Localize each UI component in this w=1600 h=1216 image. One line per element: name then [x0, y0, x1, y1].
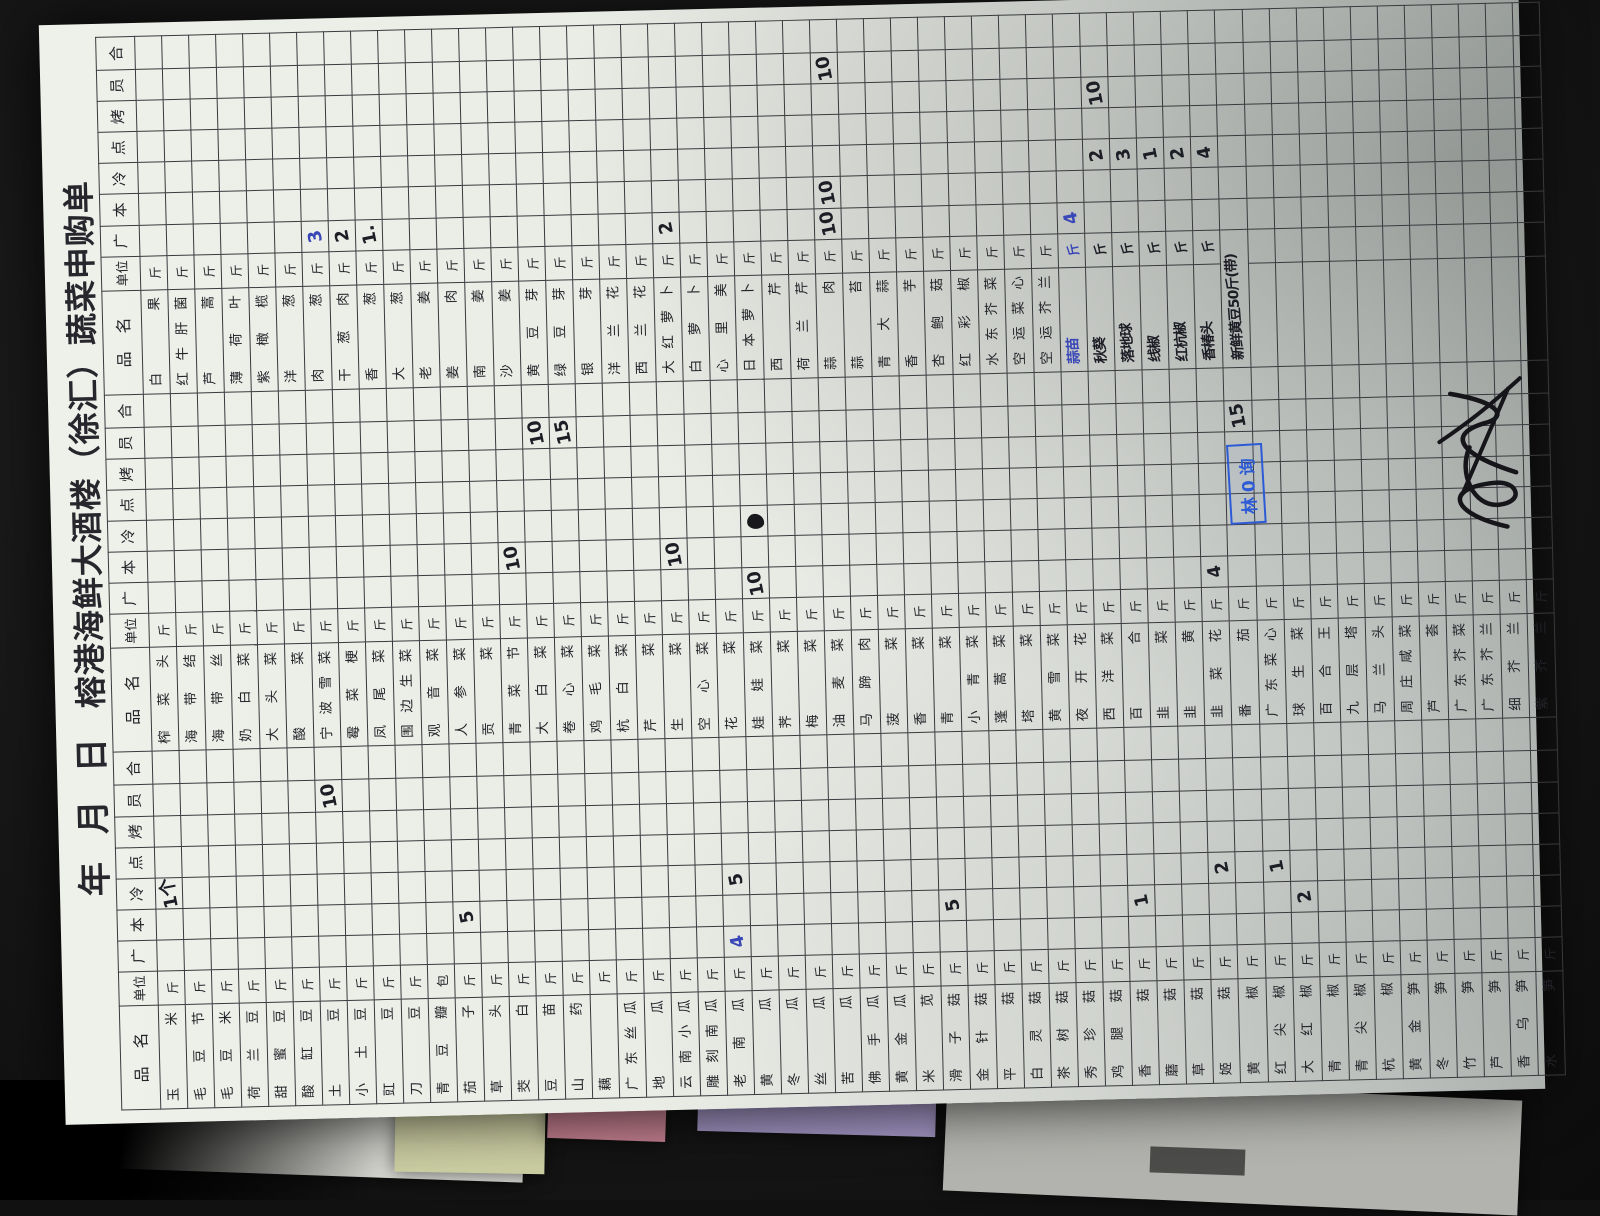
quantity-cell [1244, 73, 1272, 105]
quantity-cell [1514, 66, 1542, 98]
total-cell [135, 36, 163, 70]
quantity-cell: 4 [1201, 556, 1229, 588]
quantity-cell [272, 128, 300, 160]
total-cell [1512, 2, 1540, 36]
unit-cell: 斤 [877, 595, 905, 630]
quantity-cell [702, 55, 730, 87]
quantity-cell [1227, 524, 1256, 556]
quantity-cell [1380, 101, 1408, 133]
quantity-cell [714, 537, 742, 569]
quantity-cell [1364, 552, 1392, 584]
quantity-cell [300, 189, 328, 221]
handwritten-qty: 2 [332, 228, 352, 244]
quantity-cell [1116, 403, 1144, 435]
item-name-cell: 塔菜 [1013, 626, 1043, 731]
quantity-cell [497, 511, 525, 543]
total-cell [351, 30, 379, 64]
quantity-cell [236, 875, 264, 907]
column-header: 冷 [107, 520, 147, 552]
quantity-cell [982, 437, 1010, 469]
quantity-cell [1461, 99, 1489, 131]
item-name-cell: 青尖椒 [1347, 975, 1377, 1080]
quantity-cell [598, 213, 626, 245]
item-name-cell: 细芥兰 [1500, 614, 1530, 719]
quantity-cell [670, 927, 698, 959]
quantity-cell [346, 935, 374, 967]
quantity-cell [1490, 191, 1518, 223]
unit-cell: 斤 [707, 241, 735, 276]
quantity-cell [1324, 40, 1352, 72]
quantity-cell [219, 191, 247, 223]
quantity-cell [327, 189, 355, 221]
quantity-cell [749, 863, 777, 895]
total-cell [665, 738, 693, 772]
quantity-cell [1090, 466, 1118, 498]
quantity-cell [435, 186, 463, 218]
unit-cell: 斤 [1075, 948, 1103, 983]
quantity-cell [481, 931, 509, 963]
total-cell [449, 744, 477, 778]
quantity-cell [632, 508, 660, 540]
total-cell [278, 390, 306, 424]
quantity-cell [180, 783, 208, 815]
unit-cell: 斤 [1292, 942, 1320, 977]
handwritten-qty: 2 [1087, 147, 1107, 163]
handwritten-qty: 10 [501, 544, 524, 572]
unit-cell: 斤 [302, 251, 330, 286]
unit-cell: 斤 [1364, 583, 1392, 618]
item-name-cell: 芹菜 [635, 635, 665, 740]
unit-cell: 斤 [464, 247, 492, 282]
quantity-cell [1261, 757, 1289, 789]
item-name-cell [1383, 259, 1413, 364]
quantity-cell [756, 54, 784, 86]
quantity-cell [1426, 877, 1454, 909]
quantity-cell [612, 773, 640, 805]
quantity-cell [866, 144, 894, 176]
item-name-cell: 甜蜜豆 [266, 1002, 296, 1107]
quantity-cell [1172, 495, 1200, 527]
quantity-cell [1351, 39, 1379, 71]
handwritten-qty: 1. [359, 224, 380, 247]
total-cell [692, 738, 720, 772]
item-name-cell: 冬瓜 [779, 989, 809, 1094]
item-name-cell: 马兰头 [1365, 617, 1395, 722]
unit-cell: 斤 [1535, 937, 1563, 972]
quantity-cell [345, 904, 373, 936]
total-cell [260, 748, 288, 782]
total-cell [863, 18, 891, 52]
quantity-cell [1372, 909, 1400, 941]
column-header: 员 [96, 70, 136, 102]
quantity-cell [247, 222, 275, 254]
quantity-cell [424, 808, 452, 840]
total-cell [1088, 370, 1116, 404]
quantity-cell [1333, 397, 1361, 429]
quantity-cell [1426, 908, 1454, 940]
quantity-cell [1372, 878, 1400, 910]
purchase-order-sheet: 年 月 日 榕港海鲜大酒楼（徐汇）蔬菜申购单 品名单位广本冷点烤员合品名单位广本… [39, 0, 1545, 1125]
quantity-cell [642, 896, 670, 928]
quantity-cell [292, 936, 320, 968]
quantity-cell [1516, 160, 1544, 192]
total-cell [413, 387, 441, 421]
total-cell [701, 22, 729, 56]
quantity-cell [911, 859, 939, 891]
item-name-cell: 线椒 [1139, 265, 1169, 370]
quantity-cell [774, 800, 802, 832]
column-header: 单位 [118, 971, 158, 1006]
quantity-cell: 1 [1136, 138, 1164, 170]
quantity-cell [373, 934, 401, 966]
quantity-cell [1118, 496, 1146, 528]
quantity-cell: 4 [1190, 136, 1218, 168]
quantity-cell [894, 175, 922, 207]
unit-cell: 斤 [500, 604, 528, 639]
quantity-cell [1091, 497, 1119, 529]
quantity-cell [1153, 822, 1181, 854]
quantity-cell [802, 830, 830, 862]
quantity-cell [758, 147, 786, 179]
quantity-cell [489, 185, 517, 217]
quantity-cell [1009, 436, 1037, 468]
unit-cell: 斤 [1021, 949, 1049, 984]
total-cell [557, 741, 585, 775]
quantity-cell [1362, 490, 1390, 522]
total-cell [216, 34, 244, 68]
quantity-cell [163, 99, 191, 131]
quantity-cell [432, 62, 460, 94]
quantity-cell [253, 455, 281, 487]
unit-cell: 斤 [365, 607, 393, 642]
quantity-cell [171, 426, 199, 458]
quantity-cell [731, 148, 759, 180]
quantity-cell [1308, 491, 1336, 523]
quantity-cell [633, 539, 661, 571]
unit-cell: 斤 [1147, 588, 1175, 623]
quantity-cell [958, 562, 986, 594]
item-name-cell: 草菇 [1184, 979, 1214, 1084]
total-cell [1178, 726, 1206, 760]
quantity-cell [605, 477, 633, 509]
unit-cell: 斤 [643, 958, 671, 993]
total-cell [1377, 5, 1405, 39]
total-cell [1214, 9, 1243, 43]
unit-cell: 斤 [508, 962, 536, 997]
quantity-cell [885, 921, 913, 953]
quantity-cell [972, 49, 1000, 81]
unit-cell: 斤 [1256, 586, 1284, 621]
total-cell [1142, 369, 1170, 403]
quantity-cell [731, 117, 759, 149]
quantity-cell [666, 802, 694, 834]
quantity-cell [551, 510, 579, 542]
total-cell [206, 750, 234, 784]
quantity-cell [748, 832, 776, 864]
quantity-cell [389, 483, 417, 515]
quantity-cell [1037, 498, 1065, 530]
total-cell [422, 744, 450, 778]
total-cell [1323, 7, 1351, 41]
quantity-cell [1138, 200, 1166, 232]
quantity-cell [1234, 820, 1263, 852]
unit-cell: 斤 [958, 593, 986, 628]
item-name-cell: 马蹄肉 [851, 630, 881, 735]
quantity-cell [318, 904, 346, 936]
column-header: 点 [115, 847, 155, 879]
quantity-cell [425, 871, 453, 903]
total-cell [1305, 365, 1333, 399]
quantity-cell [1171, 464, 1199, 496]
quantity-cell [687, 537, 715, 569]
quantity-cell [1100, 854, 1128, 886]
total-cell [818, 377, 846, 411]
quantity-cell [281, 485, 309, 517]
unit-cell: 斤 [608, 602, 636, 637]
quantity-cell [594, 58, 622, 90]
quantity-cell [1062, 404, 1090, 436]
total-cell [368, 746, 396, 780]
quantity-cell [858, 922, 886, 954]
quantity-cell [1120, 558, 1148, 590]
quantity-cell [759, 178, 787, 210]
quantity-cell [533, 868, 561, 900]
total-cell [1485, 3, 1513, 37]
total-cell [395, 745, 423, 779]
quantity-cell [417, 544, 445, 576]
total-cell [917, 17, 945, 51]
total-cell [458, 28, 486, 62]
handwritten-qty: 15 [1227, 402, 1250, 430]
quantity-cell [901, 470, 929, 502]
quantity-cell [840, 176, 868, 208]
quantity-cell [937, 827, 965, 859]
item-name-cell: 平菇 [995, 984, 1025, 1089]
quantity-cell [505, 806, 533, 838]
quantity-cell [1012, 561, 1040, 593]
quantity-cell [562, 929, 590, 961]
item-name-cell: 鸡毛菜 [581, 636, 611, 741]
quantity-cell [1515, 128, 1543, 160]
total-cell [800, 735, 828, 769]
total-cell [233, 749, 261, 783]
quantity-cell [1135, 76, 1163, 108]
quantity-cell [819, 410, 847, 442]
quantity-cell [954, 407, 982, 439]
quantity-cell [666, 771, 694, 803]
unit-cell: 斤 [761, 240, 789, 275]
quantity-cell [1197, 401, 1225, 433]
total-cell [1395, 721, 1423, 755]
quantity-cell: 1. [355, 219, 383, 251]
quantity-cell [1408, 162, 1436, 194]
quantity-cell [480, 900, 508, 932]
quantity-cell [1380, 132, 1408, 164]
quantity-cell [1170, 401, 1198, 433]
item-name-cell: 生菜 [662, 634, 692, 739]
item-name-cell [1464, 257, 1494, 362]
quantity-cell [920, 143, 948, 175]
quantity-cell [1345, 910, 1373, 942]
quantity-cell [1003, 203, 1031, 235]
quantity-cell [920, 112, 948, 144]
quantity-cell: 5 [453, 901, 481, 933]
quantity-cell [380, 125, 408, 157]
total-cell [1223, 367, 1252, 401]
unit-cell: 斤 [653, 243, 681, 278]
quantity-cell [765, 411, 793, 443]
total-cell [890, 17, 918, 51]
total-cell [1043, 729, 1071, 763]
unit-cell: 斤 [778, 955, 806, 990]
quantity-cell [1387, 396, 1415, 428]
quantity-cell [706, 210, 734, 242]
quantity-cell [1424, 815, 1452, 847]
quantity-cell [245, 128, 273, 160]
quantity-cell [1008, 405, 1036, 437]
quantity-cell [876, 533, 904, 565]
quantity-cell [624, 181, 652, 213]
quantity-cell [135, 69, 163, 101]
quantity-cell [202, 580, 230, 612]
quantity-cell [712, 475, 740, 507]
quantity-cell [1072, 824, 1100, 856]
unit-cell [1491, 222, 1519, 257]
quantity-cell [1044, 762, 1072, 794]
quantity-cell [515, 122, 543, 154]
total-cell [305, 390, 333, 424]
unit-cell: 斤 [788, 239, 816, 274]
quantity-cell [1144, 433, 1172, 465]
quantity-cell [621, 57, 649, 89]
quantity-cell [1233, 758, 1262, 790]
handwritten-qty: 2 [1168, 145, 1188, 161]
quantity-cell [1503, 751, 1531, 783]
unit-cell: 斤 [1508, 937, 1536, 972]
quantity-cell [801, 768, 829, 800]
quantity-cell [831, 892, 859, 924]
item-name-cell: 银芽 [573, 279, 603, 384]
total-cell [629, 382, 657, 416]
quantity-cell [964, 826, 992, 858]
unit-cell [1275, 228, 1303, 263]
handwritten-qty: 5 [726, 871, 746, 887]
quantity-cell [1409, 193, 1437, 225]
total-cell [791, 378, 819, 412]
quantity-cell [1422, 753, 1450, 785]
quantity-cell [615, 897, 643, 929]
quantity-cell [704, 117, 732, 149]
item-name-cell: 花菜 [716, 633, 746, 738]
quantity-cell [162, 68, 190, 100]
total-cell [378, 30, 406, 64]
quantity-cell [785, 146, 813, 178]
quantity-cell [1092, 528, 1120, 560]
item-name-cell: 凤尾菜 [365, 642, 395, 747]
quantity-cell [1344, 848, 1372, 880]
total-cell [1449, 719, 1477, 753]
item-name-cell: 蓬蒿菜 [986, 626, 1016, 731]
quantity-cell [387, 421, 415, 453]
item-name-cell: 围边生菜 [392, 641, 422, 746]
item-name-cell: 老姜 [411, 283, 441, 388]
quantity-cell [442, 450, 470, 482]
total-cell [521, 384, 549, 418]
quantity-cell [651, 150, 679, 182]
quantity-cell [198, 425, 226, 457]
handwritten-qty: 4 [1195, 144, 1215, 160]
quantity-cell [1282, 523, 1310, 555]
quantity-cell [154, 846, 182, 878]
unit-cell [1437, 224, 1465, 259]
quantity-cell [929, 501, 957, 533]
quantity-cell [1143, 402, 1171, 434]
quantity-cell [949, 204, 977, 236]
handwritten-qty: 4 [1205, 564, 1225, 580]
quantity-cell [1507, 906, 1535, 938]
unit-cell: 斤 [743, 598, 771, 633]
quantity-cell: 3 [1109, 138, 1137, 170]
quantity-cell [1101, 916, 1129, 948]
order-table: 品名单位广本冷点烤员合品名单位广本冷点烤员合品名单位广本冷点烤员合玉米斤1个榨菜… [95, 2, 1566, 1111]
total-cell [899, 375, 927, 409]
item-name-cell: 榨菜头 [150, 647, 180, 752]
quantity-cell [299, 127, 327, 159]
column-header: 合 [104, 394, 144, 428]
total-cell [845, 376, 873, 410]
quantity-cell [524, 510, 552, 542]
quantity-cell [219, 160, 247, 192]
column-header: 冷 [116, 878, 156, 910]
unit-cell: 斤 [410, 249, 438, 284]
handwritten-qty: 2 [1295, 888, 1315, 904]
unit-cell: 斤 [1093, 590, 1121, 625]
quantity-cell [1206, 789, 1234, 821]
unit-cell: 斤 [1066, 590, 1094, 625]
quantity-cell [200, 518, 228, 550]
item-name-cell: 霉菜梗 [338, 642, 368, 747]
quantity-cell: 10 [1081, 77, 1109, 109]
quantity-cell [1272, 103, 1300, 135]
quantity-cell [1110, 169, 1138, 201]
item-name-cell [1275, 262, 1305, 367]
quantity-cell [694, 833, 722, 865]
item-name-cell: 黄瓜 [752, 990, 782, 1095]
total-cell [953, 374, 981, 408]
quantity-cell [1307, 429, 1335, 461]
unit-cell: 斤 [1454, 939, 1482, 974]
item-name-cell: 广东菜心 [1257, 620, 1287, 725]
item-name-cell: 韭黄 [1175, 622, 1205, 727]
unit-cell: 斤 [1319, 942, 1347, 977]
unit-cell: 斤 [734, 241, 762, 276]
quantity-cell [1530, 750, 1558, 782]
quantity-cell [822, 534, 850, 566]
unit-cell: 斤 [373, 965, 401, 1000]
quantity-cell [777, 893, 805, 925]
quantity-cell [450, 777, 478, 809]
quantity-cell [1262, 819, 1290, 851]
unit-cell: 斤 [832, 954, 860, 989]
quantity-cell [499, 573, 527, 605]
quantity-cell [1477, 783, 1505, 815]
quantity-cell [1046, 855, 1074, 887]
item-name-cell: 大葱 [384, 283, 414, 388]
quantity-cell [1152, 791, 1180, 823]
quantity-cell [1207, 820, 1235, 852]
quantity-cell [505, 837, 533, 869]
quantity-cell [415, 451, 443, 483]
